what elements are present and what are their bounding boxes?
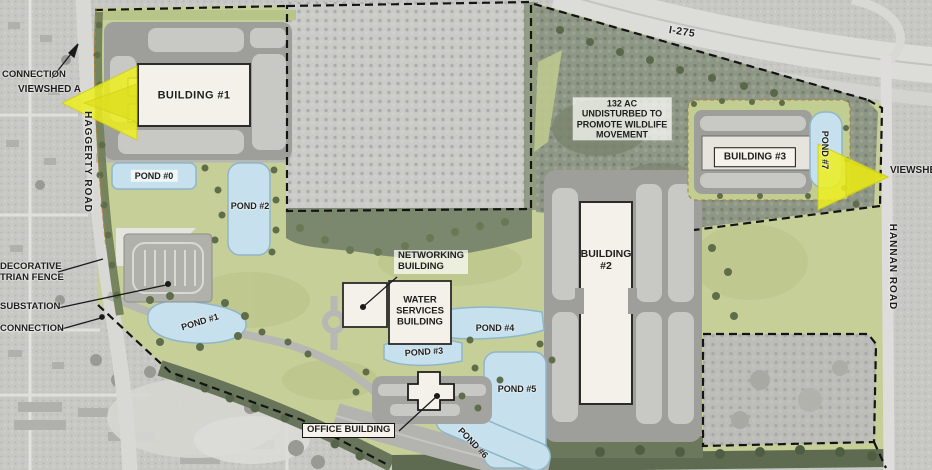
building-2-campus [544,170,702,442]
exclusion-parcel-shape [703,334,876,446]
building-2-notch-right [628,288,637,314]
building-1-label: BUILDING #1 [158,90,231,103]
water-services-building-label: WATER SERVICES BUILDING [396,296,444,329]
building-3-label: BUILDING #3 [714,147,796,167]
pond-0-label: POND #0 [131,170,178,182]
building-2-footprint [580,202,632,404]
building-2-label: BUILDING #2 [581,248,632,272]
wildlife-area-note: 132 AC UNDISTURBED TO PROMOTE WILDLIFE M… [573,97,672,140]
site-plan-canvas [0,0,932,470]
decorative-fence-label: DECORATIVE TRIAN FENCE [0,262,64,284]
connection-north-label: CONNECTION [2,70,66,81]
office-building-label: OFFICE BUILDING [302,423,395,438]
haggerty-road-label: HAGGERTY ROAD [81,111,93,213]
substation-shape [116,228,212,302]
networking-building-label: NETWORKING BUILDING [394,250,468,274]
connection-south-label: CONNECTION [0,324,64,335]
pond-7-label: POND #7 [820,131,830,170]
pond-4-label: POND #4 [476,323,515,333]
pond-2-label: POND #2 [231,201,270,211]
hannan-road-label: HANNAN ROAD [886,224,898,311]
site-plan-map: CONNECTION VIEWSHED A HAGGERTY ROAD BUIL… [0,0,932,470]
forest-block-shape [286,2,538,257]
substation-label: SUBSTATION [0,302,60,313]
building-2-notch-left [575,288,584,314]
pond-5-label: POND #5 [498,384,537,394]
viewshed-b-label: VIEWSHED [890,165,932,177]
viewshed-a-label: VIEWSHED A [18,84,81,96]
